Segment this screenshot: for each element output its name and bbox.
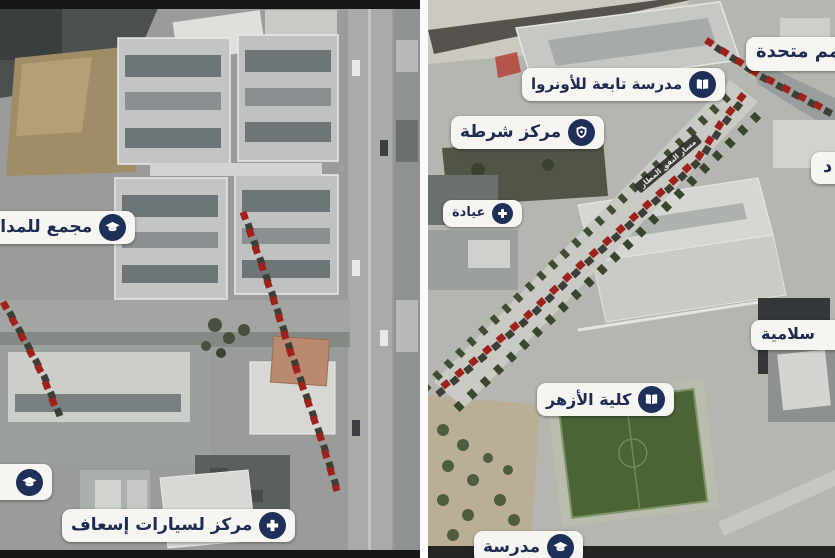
label-dal-cutoff: د <box>811 152 835 184</box>
label-united-nations-cutoff: مم متحدة <box>746 37 835 71</box>
label-text: كلية الأزهر <box>546 390 631 410</box>
label-text: مدرسة <box>483 537 540 558</box>
label-school-bottom: مدرسة <box>474 531 583 558</box>
label-police-center: مركز شرطة <box>451 116 604 149</box>
label-ambulance-center: مركز لسيارات إسعاف <box>62 509 295 542</box>
right-map-panel: مسار النفق المطار مدرسة تابعة للأونروا م… <box>428 0 835 558</box>
book-icon <box>689 71 716 98</box>
map-graphic: مجمع للمدارس مركز لسيارات إسعاف <box>0 0 835 558</box>
medical-cross-icon <box>259 512 286 539</box>
label-text: مدرسة تابعة للأونروا <box>531 75 682 94</box>
medical-cross-icon <box>492 203 513 224</box>
book-icon <box>638 386 665 413</box>
label-al-azhar-college: كلية الأزهر <box>537 383 674 416</box>
label-text: مركز شرطة <box>460 122 561 143</box>
panel-divider <box>420 0 428 558</box>
left-satellite-art <box>0 0 420 558</box>
label-school-cutoff <box>0 464 52 500</box>
label-text: مجمع للمدارس <box>0 217 92 238</box>
label-islamic-cutoff: سلامية <box>751 320 835 350</box>
label-text: مركز لسيارات إسعاف <box>71 515 252 536</box>
label-unrwa-school: مدرسة تابعة للأونروا <box>522 68 725 101</box>
graduation-cap-icon <box>16 469 43 496</box>
label-text: عيادة <box>452 205 485 221</box>
left-map-panel: مجمع للمدارس مركز لسيارات إسعاف <box>0 0 420 558</box>
label-clinic: عيادة <box>443 200 522 227</box>
police-badge-icon <box>568 119 595 146</box>
graduation-cap-icon <box>547 534 574 558</box>
graduation-cap-icon <box>99 214 126 241</box>
label-school-complex: مجمع للمدارس <box>0 211 135 244</box>
